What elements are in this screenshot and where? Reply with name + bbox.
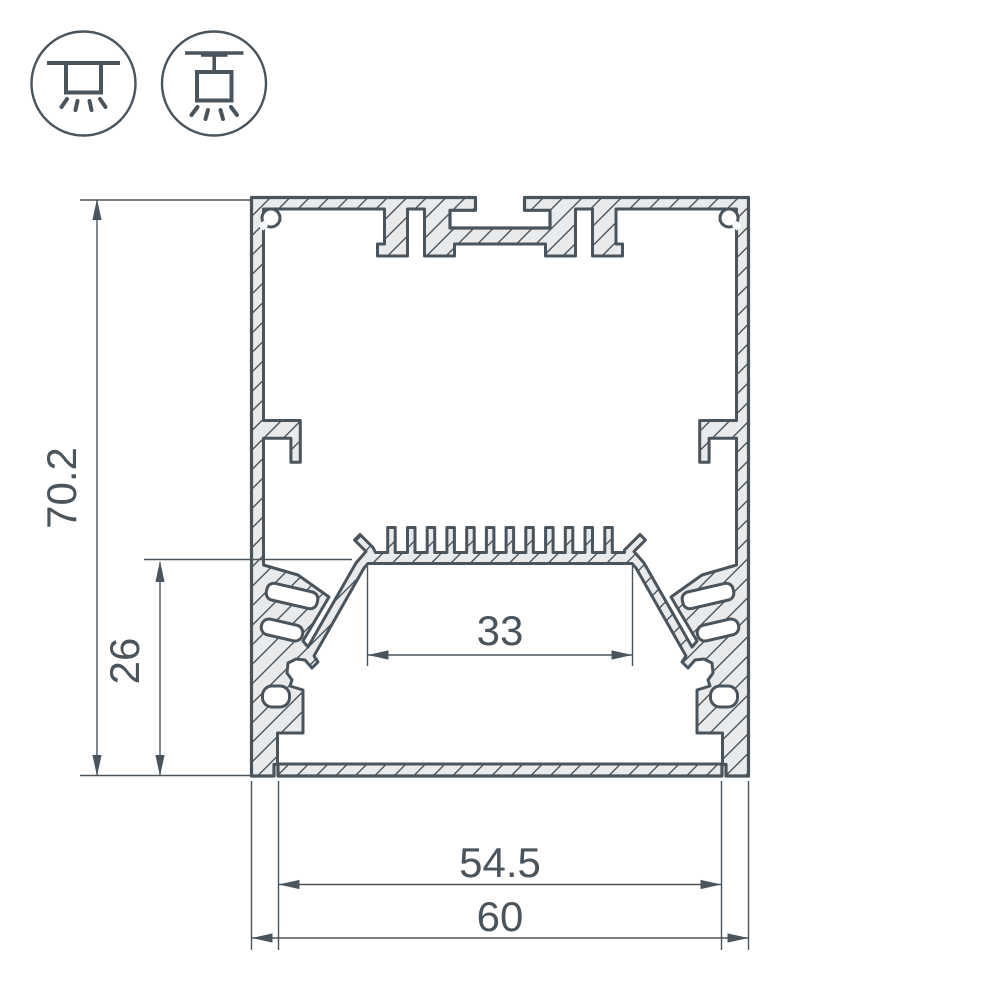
svg-text:70.2: 70.2 <box>38 447 85 529</box>
svg-text:26: 26 <box>101 638 148 685</box>
svg-text:60: 60 <box>477 893 524 940</box>
svg-text:33: 33 <box>477 607 524 654</box>
svg-text:54.5: 54.5 <box>459 839 541 886</box>
